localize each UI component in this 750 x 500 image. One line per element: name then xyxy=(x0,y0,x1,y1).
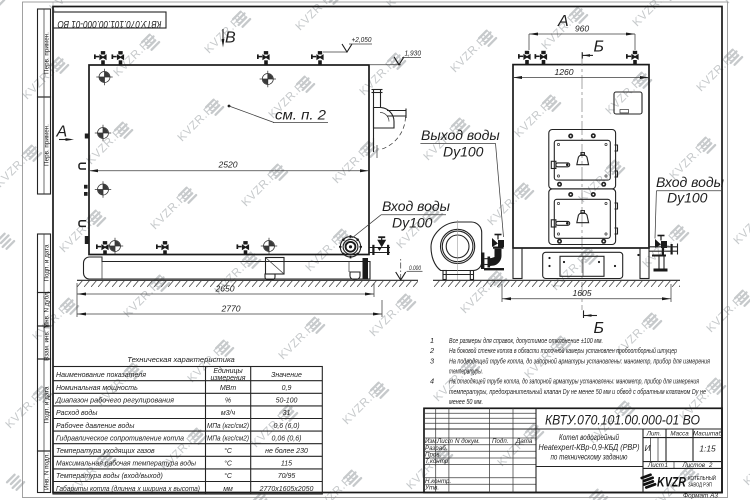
svg-text:На отводящей трубе котла, до з: На отводящей трубе котла, до запорной ар… xyxy=(449,377,699,386)
svg-text:Масса: Масса xyxy=(670,431,689,438)
svg-text:2: 2 xyxy=(708,462,713,469)
svg-text:ЗАВОД РЭП: ЗАВОД РЭП xyxy=(688,483,712,489)
svg-text:Листов: Листов xyxy=(682,462,706,469)
svg-text:Подп. и дата: Подп. и дата xyxy=(44,386,51,424)
svg-text:На подводящей трубе котла, д: На подводящей трубе котла, до запорной а… xyxy=(449,356,710,365)
svg-text:Т.контр.: Т.контр. xyxy=(425,458,450,465)
svg-text:КОТЕЛЬНЫЙ: КОТЕЛЬНЫЙ xyxy=(688,474,716,482)
svg-text:1260: 1260 xyxy=(554,67,573,77)
svg-text:Подп. и дата: Подп. и дата xyxy=(44,244,51,282)
svg-text:Расход воды: Расход воды xyxy=(56,409,98,417)
svg-text:1:15: 1:15 xyxy=(699,444,716,454)
svg-text:4: 4 xyxy=(430,377,434,386)
svg-text:м3/ч: м3/ч xyxy=(221,410,236,417)
svg-text:1: 1 xyxy=(430,336,434,345)
svg-text:мм: мм xyxy=(223,486,233,493)
svg-text:°С: °С xyxy=(224,447,233,455)
svg-text:Габариты котла (длинна х ширин: Габариты котла (длинна х ширина х высота… xyxy=(56,485,200,493)
svg-text:2770: 2770 xyxy=(220,304,240,314)
svg-text:Выход воды: Выход воды xyxy=(421,127,500,143)
svg-text:Инв. N подл.: Инв. N подл. xyxy=(44,453,51,490)
svg-text:менее 50 мм.: менее 50 мм. xyxy=(449,397,483,406)
svg-text:1: 1 xyxy=(665,462,668,469)
svg-text:°С: °С xyxy=(224,472,233,480)
svg-text:МПа (кгс/см2): МПа (кгс/см2) xyxy=(207,435,249,442)
svg-text:Значение: Значение xyxy=(271,372,302,379)
svg-text:Техническая характеристика: Техническая характеристика xyxy=(127,355,235,364)
svg-text:температуры, предохранительный: температуры, предохранительный клапан Dу… xyxy=(449,387,706,396)
svg-text:2520: 2520 xyxy=(217,160,237,170)
svg-text:Heatexpert-КВр-0,9-КБД (РВР): Heatexpert-КВр-0,9-КБД (РВР) xyxy=(539,443,640,452)
svg-text:Перв. примен.: Перв. примен. xyxy=(44,32,51,74)
svg-text:Dy100: Dy100 xyxy=(443,144,484,160)
svg-text:2650: 2650 xyxy=(214,284,234,294)
svg-text:температуры.: температуры. xyxy=(449,367,483,376)
svg-text:А: А xyxy=(56,124,68,141)
svg-text:N докум.: N докум. xyxy=(455,438,480,445)
svg-text:Формат А3: Формат А3 xyxy=(683,493,718,500)
svg-text:Перв. примен.: Перв. примен. xyxy=(44,124,51,166)
svg-text:Масштаб: Масштаб xyxy=(693,431,722,438)
svg-text:Подп.: Подп. xyxy=(492,438,508,445)
svg-text:0,6 (6,0): 0,6 (6,0) xyxy=(273,423,299,430)
svg-text:КВТУ.070.101.00.000-01 ВО: КВТУ.070.101.00.000-01 ВО xyxy=(57,18,161,29)
svg-text:МПа (кгс/см2): МПа (кгс/см2) xyxy=(207,423,249,430)
svg-text:0.000: 0.000 xyxy=(409,265,421,272)
svg-text:Лист: Лист xyxy=(436,438,453,445)
svg-text:Диапазон рабочего регулировани: Диапазон рабочего регулирования xyxy=(55,397,174,405)
svg-text:МВт: МВт xyxy=(220,385,237,392)
svg-text:0,06 (0,6): 0,06 (0,6) xyxy=(272,435,302,442)
svg-text:70/95: 70/95 xyxy=(278,473,296,480)
svg-text:Утв.: Утв. xyxy=(424,485,439,492)
svg-text:Температура уходящих газов: Температура уходящих газов xyxy=(56,447,155,455)
svg-text:Dy100: Dy100 xyxy=(667,190,708,206)
svg-text:Инв. N дубл.: Инв. N дубл. xyxy=(43,290,51,327)
svg-text:31: 31 xyxy=(283,410,291,417)
svg-text:Все размеры для справок, допус: Все размеры для справок, допустимое откл… xyxy=(449,336,603,345)
svg-text:Б: Б xyxy=(594,320,604,337)
svg-text:Взам. инв. N: Взам. инв. N xyxy=(44,324,51,361)
svg-text:1,930: 1,930 xyxy=(405,49,422,58)
svg-text:Гидравлическое сопротивление к: Гидравлическое сопротивление котла xyxy=(56,434,184,442)
svg-text:KVZR: KVZR xyxy=(657,475,686,490)
svg-text:Котел водогрейный: Котел водогрейный xyxy=(559,433,619,442)
svg-text:Вход воды: Вход воды xyxy=(382,198,451,214)
svg-text:На боковой стенке котла в обла: На боковой стенке котла в области топочн… xyxy=(449,346,677,355)
svg-text:В: В xyxy=(225,30,236,47)
svg-text:Б: Б xyxy=(594,39,604,56)
svg-text:Лит.: Лит. xyxy=(646,431,662,438)
svg-text:Вход воды: Вход воды xyxy=(656,174,725,190)
svg-text:Dy100: Dy100 xyxy=(392,215,433,231)
svg-text:Максимальная рабочая температу: Максимальная рабочая температура воды xyxy=(56,460,197,468)
svg-text:Наименование показателя: Наименование показателя xyxy=(56,372,146,379)
svg-text:А: А xyxy=(557,13,569,30)
svg-text:Номинальная мощность: Номинальная мощность xyxy=(56,385,138,392)
svg-text:%: % xyxy=(225,398,231,405)
svg-text:115: 115 xyxy=(281,461,292,468)
svg-text:измерения: измерения xyxy=(210,375,245,382)
svg-text:Рабочее давление воды: Рабочее давление воды xyxy=(56,422,135,430)
svg-text:Единицы: Единицы xyxy=(213,367,243,375)
svg-text:2: 2 xyxy=(429,346,434,355)
svg-text:Лист: Лист xyxy=(647,462,664,469)
svg-text:+2,050: +2,050 xyxy=(352,35,373,44)
svg-text:см. п. 2: см. п. 2 xyxy=(275,107,326,123)
svg-text:°С: °С xyxy=(224,460,233,468)
svg-text:по техническому заданию: по техническому заданию xyxy=(551,453,628,462)
svg-text:50-100: 50-100 xyxy=(276,398,298,405)
svg-text:3: 3 xyxy=(430,356,434,365)
svg-text:0,9: 0,9 xyxy=(282,385,292,392)
svg-text:И: И xyxy=(645,443,651,453)
svg-text:960: 960 xyxy=(575,24,590,34)
svg-text:не более 230: не более 230 xyxy=(265,447,308,455)
svg-text:2770х1605х2050: 2770х1605х2050 xyxy=(259,486,314,493)
svg-text:КВТУ.070.101.00.000-01 ВО: КВТУ.070.101.00.000-01 ВО xyxy=(545,412,700,428)
svg-text:Дата: Дата xyxy=(515,438,533,445)
svg-text:Температура воды (вход/выход): Температура воды (вход/выход) xyxy=(56,472,163,480)
svg-text:1605: 1605 xyxy=(572,288,591,298)
